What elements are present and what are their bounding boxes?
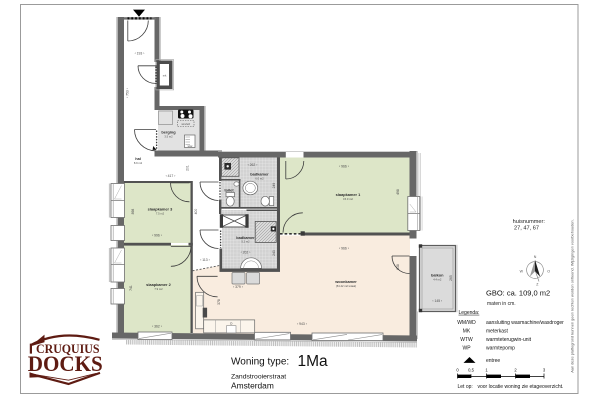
svg-text:3.5 m2: 3.5 m2 — [164, 135, 173, 139]
svg-text:slaapkamer 1: slaapkamer 1 — [336, 192, 361, 197]
svg-text:15.0 m2: 15.0 m2 — [343, 197, 353, 201]
svg-text:‹ 362 ›: ‹ 362 › — [152, 324, 162, 328]
svg-text:8.9 m2: 8.9 m2 — [134, 161, 143, 165]
svg-text:N: N — [534, 255, 537, 259]
svg-text:‹ 966 ›: ‹ 966 › — [339, 247, 349, 251]
svg-text:4.4 m2: 4.4 m2 — [433, 277, 442, 281]
svg-text:warmteterugwin-unit: warmteterugwin-unit — [486, 337, 532, 343]
svg-text:voor locatie woning zie etageo: voor locatie woning zie etageoverzicht. — [478, 384, 564, 390]
svg-text:balkon: balkon — [431, 273, 444, 278]
svg-text:maten in cm.: maten in cm. — [487, 301, 516, 307]
svg-text:5.2 m2: 5.2 m2 — [241, 240, 250, 244]
svg-text:entree: entree — [486, 358, 500, 364]
svg-text:Woning type:: Woning type: — [231, 357, 289, 368]
svg-text:249: 249 — [272, 183, 276, 189]
svg-text:huisnummer:: huisnummer: — [513, 219, 546, 225]
svg-text:‹ 113 ›: ‹ 113 › — [200, 258, 210, 262]
svg-text:400: 400 — [194, 209, 198, 215]
svg-text:‹ 943 ›: ‹ 943 › — [297, 322, 307, 326]
svg-text:WTW: WTW — [460, 337, 473, 343]
svg-text:Let op:: Let op: — [458, 384, 473, 390]
svg-text:Amsterdam: Amsterdam — [231, 381, 274, 391]
svg-text:‹ 379 ›: ‹ 379 › — [233, 285, 243, 289]
svg-text:slaapkamer 2: slaapkamer 2 — [146, 282, 171, 287]
svg-text:meterkast: meterkast — [486, 329, 509, 335]
svg-text:‹ 966 ›: ‹ 966 › — [339, 165, 349, 169]
svg-text:WP: WP — [462, 346, 471, 352]
svg-text:243: 243 — [272, 250, 276, 256]
svg-text:638: 638 — [396, 264, 400, 270]
svg-text:GBO: ca. 109,0 m2: GBO: ca. 109,0 m2 — [486, 289, 550, 298]
svg-text:6.0 m2: 6.0 m2 — [255, 177, 264, 181]
svg-text:MK: MK — [463, 329, 471, 335]
svg-text:7.5 m2: 7.5 m2 — [156, 212, 165, 216]
svg-text:‹ 193 ›: ‹ 193 › — [135, 52, 145, 56]
svg-text:‹ 417 ›: ‹ 417 › — [166, 174, 176, 178]
svg-text:7.9 m2: 7.9 m2 — [154, 287, 163, 291]
svg-text:‹ 996 ›: ‹ 996 › — [152, 234, 162, 238]
svg-text:warmtepomp: warmtepomp — [486, 346, 515, 352]
svg-text:201: 201 — [185, 165, 189, 171]
svg-text:O: O — [547, 269, 550, 273]
svg-text:27, 47, 67: 27, 47, 67 — [514, 226, 539, 232]
svg-text:Aan deze plattegrond kunnen ge: Aan deze plattegrond kunnen geen rechten… — [570, 219, 575, 373]
svg-text:Legenda:: Legenda: — [459, 310, 480, 316]
svg-text:wtw: wtw — [188, 144, 193, 148]
svg-text:(54.42 m2 totaal): (54.42 m2 totaal) — [336, 284, 356, 288]
svg-text:WM/WD: WM/WD — [457, 320, 476, 326]
svg-text:Zandstrooierstraat: Zandstrooierstraat — [231, 374, 286, 381]
svg-text:slaapkamer 3: slaapkamer 3 — [148, 206, 173, 211]
svg-text:woonkamer: woonkamer — [334, 279, 357, 284]
svg-text:1Ma: 1Ma — [298, 353, 329, 370]
svg-text:‹ 262 ›: ‹ 262 › — [248, 163, 258, 167]
svg-text:hal: hal — [135, 156, 141, 161]
svg-text:badkamer: badkamer — [236, 235, 255, 240]
svg-text:‹ 145 ›: ‹ 145 › — [432, 299, 442, 303]
svg-text:W: W — [520, 270, 524, 274]
svg-text:741: 741 — [129, 285, 133, 291]
svg-text:498: 498 — [396, 189, 400, 195]
svg-text:265: 265 — [449, 275, 453, 281]
svg-text:toilet: toilet — [224, 188, 234, 193]
svg-text:378: 378 — [217, 299, 221, 305]
svg-text:badkamer: badkamer — [250, 172, 269, 177]
svg-text:‹ 753 ›: ‹ 753 › — [125, 88, 129, 98]
svg-text:‹ 202 ›: ‹ 202 › — [241, 251, 251, 255]
svg-text:898: 898 — [131, 209, 135, 215]
svg-text:DOCKS: DOCKS — [28, 351, 103, 376]
svg-text:aansluiting wasmachine/wasdrog: aansluiting wasmachine/wasdroger — [486, 320, 564, 326]
svg-text:berging: berging — [161, 129, 176, 134]
svg-text:0,5: 0,5 — [468, 367, 474, 372]
svg-text:wm/wd: wm/wd — [182, 122, 191, 126]
